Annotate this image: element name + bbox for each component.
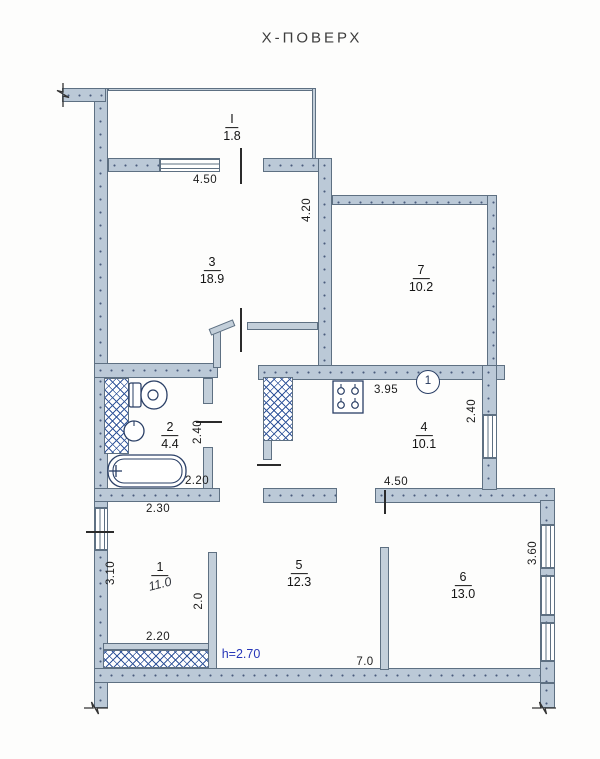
wall-room7-top — [332, 195, 497, 205]
wall-balcony-top — [108, 88, 314, 91]
dim-room3-height: 4.20 — [301, 198, 313, 222]
dim-room6-height: 3.60 — [527, 541, 539, 565]
dim-room1-bottom-width: 2.20 — [146, 631, 170, 643]
bathtub-fixture — [107, 454, 187, 488]
dim-room1-top-width: 2.30 — [146, 503, 170, 515]
window-room6-1 — [540, 525, 555, 568]
ceiling-height-note: h=2.70 — [222, 647, 261, 661]
wall-bath-right-upper — [203, 378, 213, 404]
window-balcony-railing — [160, 158, 220, 172]
riser-mark: 1 — [416, 370, 440, 394]
wall-room6-right-a — [540, 500, 555, 525]
wall-bath-room1-divider — [94, 488, 220, 502]
dim-room1-height: 3.10 — [105, 561, 117, 585]
dim-bath-width: 2.20 — [185, 475, 209, 487]
dim-bath-height: 2.40 — [192, 420, 204, 444]
riser-mark-number: 1 — [425, 375, 431, 387]
toilet-fixture — [128, 380, 168, 410]
tick-kitchen-door — [384, 490, 386, 514]
room-number: 1 — [152, 560, 169, 576]
page-title: Х-ПОВЕРХ — [262, 30, 363, 47]
floor-plan-page: Х-ПОВЕРХ — [0, 0, 600, 759]
room-area: 13.0 — [451, 587, 475, 602]
tick-kitchen-left-door — [257, 464, 281, 466]
room-area: 10.2 — [409, 280, 433, 295]
hatch-strip-bottom — [103, 650, 209, 668]
room-number: 2 — [162, 420, 179, 436]
room-label-5: 5 12.3 — [287, 556, 311, 590]
room-number: 7 — [413, 263, 430, 279]
wall-room6-right-c — [540, 615, 555, 623]
wall-room7-right — [487, 195, 497, 375]
room-area-handwritten: 11.0 — [147, 575, 173, 595]
wall-break-icon-top-left — [52, 83, 74, 107]
wall-room6-right-d — [540, 661, 555, 683]
wall-room1-bottom — [103, 643, 209, 650]
window-room6-2 — [540, 576, 555, 615]
tick-room3-door — [240, 308, 242, 352]
room-label-2: 2 4.4 — [161, 418, 178, 452]
dim-kitchen-bottom-width: 4.50 — [384, 476, 408, 488]
wall-kitchen-left — [263, 440, 272, 460]
wall-break-icon-bottom-right — [532, 697, 556, 719]
room-number: I — [225, 112, 238, 128]
wall-room3-bottom — [94, 363, 218, 378]
wall-room6-right-b — [540, 568, 555, 576]
wall-kitchen-right-upper — [482, 365, 497, 415]
room-area: 18.9 — [200, 272, 224, 287]
wall-room5-room6-divider — [380, 547, 389, 670]
wall-room3-room7-divider — [318, 158, 332, 378]
room-area: 4.4 — [161, 437, 178, 452]
room-number: 3 — [204, 255, 221, 271]
room-label-4: 4 10.1 — [412, 418, 436, 452]
room-number: 6 — [455, 570, 472, 586]
dim-kitchen-width: 3.95 — [374, 384, 398, 396]
wall-mid-horizontal — [258, 365, 505, 380]
room-label-3: 3 18.9 — [200, 253, 224, 287]
sink-fixture — [122, 419, 146, 443]
room-number: 4 — [416, 420, 433, 436]
wall-break-icon-bottom-left — [84, 697, 108, 719]
tick-room1-window — [86, 531, 114, 533]
dim-kitchen-height: 2.40 — [466, 399, 478, 423]
wall-bottom-exterior — [94, 668, 555, 683]
window-room1-left — [94, 508, 108, 550]
room-area: 10.1 — [412, 437, 436, 452]
window-room6-3 — [540, 623, 555, 661]
wall-corridor-diagonal — [209, 319, 236, 335]
wall-corridor-jamb — [213, 330, 221, 368]
room-area: 1.8 — [223, 129, 240, 144]
room-area: 12.3 — [287, 575, 311, 590]
wall-kitchen-right-lower — [482, 458, 497, 490]
room-number: 5 — [291, 558, 308, 574]
hatch-shaft-kitchen — [263, 377, 293, 441]
stove-fixture — [332, 380, 364, 414]
dim-room5-width: 7.0 — [356, 656, 373, 668]
dim-room3-width: 4.50 — [193, 174, 217, 186]
room-label-6: 6 13.0 — [451, 568, 475, 602]
room-label-1: 1 11.0 — [148, 558, 171, 592]
wall-kitchen-bottom-b — [375, 488, 555, 503]
room-label-7: 7 10.2 — [409, 261, 433, 295]
wall-balcony-right — [312, 88, 316, 160]
tick-balcony-door — [240, 148, 242, 184]
wall-room3-top-a — [108, 158, 160, 172]
wall-room1-partition — [208, 552, 217, 672]
wall-room3-niche — [247, 322, 318, 330]
room-label-balcony: I 1.8 — [223, 110, 240, 144]
dim-room1-right-height: 2.0 — [193, 592, 205, 609]
window-kitchen — [482, 415, 497, 458]
wall-kitchen-bottom-a — [263, 488, 337, 503]
